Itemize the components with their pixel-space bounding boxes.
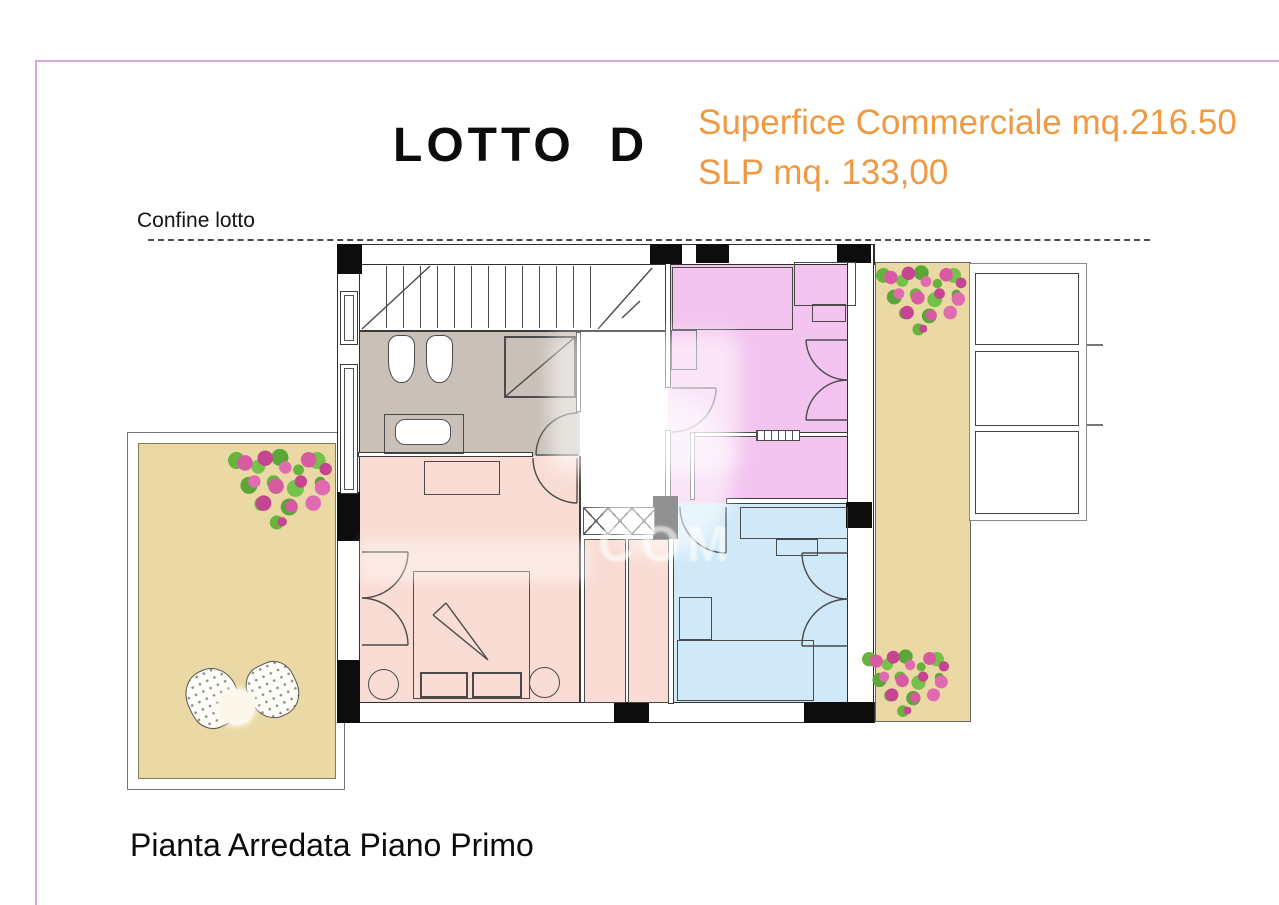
shelf-blue bbox=[776, 539, 818, 556]
desk-blue bbox=[740, 507, 848, 539]
column bbox=[337, 244, 362, 274]
slp-label: SLP mq. 133,00 bbox=[698, 148, 1279, 198]
building-wall-bottom bbox=[337, 702, 875, 723]
pergola-panel bbox=[975, 351, 1079, 426]
vanity-counter bbox=[384, 414, 464, 454]
deck-right bbox=[875, 262, 971, 722]
column bbox=[846, 502, 872, 528]
terrace-left bbox=[127, 432, 345, 790]
column bbox=[846, 702, 874, 723]
dresser bbox=[424, 461, 500, 495]
bed-blue bbox=[677, 640, 814, 701]
chair-pink bbox=[812, 304, 846, 322]
partition-pink-blue bbox=[726, 498, 848, 504]
desk-pink bbox=[794, 262, 856, 306]
terrace-left-decking bbox=[138, 443, 336, 779]
column bbox=[337, 660, 360, 723]
window bbox=[340, 364, 358, 494]
column bbox=[804, 702, 848, 723]
boundary-label: Confine lotto bbox=[137, 209, 255, 233]
drawing-sheet: LOTTO D Superfice Commerciale mq.216.50 … bbox=[0, 0, 1279, 905]
column bbox=[614, 702, 649, 723]
window bbox=[340, 291, 358, 345]
radiator bbox=[756, 430, 800, 441]
watermark-text: COM bbox=[598, 515, 736, 573]
bidet bbox=[388, 335, 415, 383]
area-info: Superfice Commerciale mq.216.50 SLP mq. … bbox=[698, 98, 1279, 197]
blooms-icon bbox=[870, 655, 883, 668]
column bbox=[650, 244, 682, 264]
pergola-panel bbox=[975, 431, 1079, 514]
toilet bbox=[426, 335, 453, 383]
plan-caption: Pianta Arredata Piano Primo bbox=[130, 827, 534, 864]
pillow bbox=[420, 672, 468, 698]
column bbox=[837, 244, 871, 263]
boundary-dashed-line bbox=[148, 239, 1150, 241]
column bbox=[696, 244, 729, 263]
watermark-text-ghost bbox=[360, 540, 590, 582]
stair-treads bbox=[386, 266, 599, 328]
surface-commercial-label: Superfice Commerciale mq.216.50 bbox=[698, 98, 1279, 148]
pergola-structure bbox=[969, 263, 1087, 521]
pergola-panel bbox=[975, 273, 1079, 345]
lot-title: LOTTO D bbox=[393, 118, 648, 173]
side-table-blue bbox=[679, 597, 712, 640]
nightstand bbox=[368, 669, 399, 700]
blooms-icon bbox=[237, 455, 253, 471]
coffee-table bbox=[219, 689, 255, 725]
column bbox=[337, 492, 360, 541]
nightstand bbox=[529, 667, 560, 698]
bed-pink bbox=[672, 267, 793, 330]
pillow bbox=[472, 672, 522, 698]
blooms-icon bbox=[884, 271, 898, 285]
sink bbox=[395, 419, 451, 445]
